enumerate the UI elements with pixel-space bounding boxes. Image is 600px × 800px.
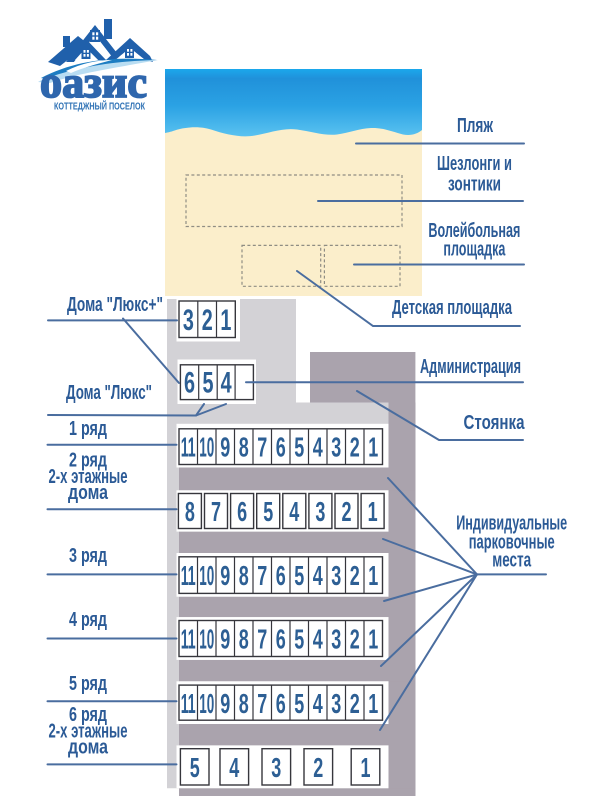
svg-text:Пляж: Пляж xyxy=(457,115,494,137)
svg-text:Дома "Люкс": Дома "Люкс" xyxy=(66,382,152,404)
svg-text:Шезлонги и: Шезлонги и xyxy=(437,153,512,175)
svg-text:8: 8 xyxy=(185,496,195,527)
svg-text:8: 8 xyxy=(239,560,249,591)
svg-text:11: 11 xyxy=(181,688,196,719)
svg-text:5: 5 xyxy=(294,688,304,719)
svg-text:8: 8 xyxy=(239,688,249,719)
svg-text:6: 6 xyxy=(276,688,286,719)
svg-text:9: 9 xyxy=(220,624,230,655)
svg-text:1: 1 xyxy=(368,560,378,591)
svg-text:1: 1 xyxy=(368,432,378,463)
svg-text:4: 4 xyxy=(221,367,232,400)
svg-text:7: 7 xyxy=(257,432,267,463)
svg-text:3: 3 xyxy=(331,432,341,463)
svg-text:7: 7 xyxy=(257,688,267,719)
svg-text:11: 11 xyxy=(181,624,196,655)
svg-text:Дома "Люкс+": Дома "Люкс+" xyxy=(67,294,163,316)
svg-text:оазис: оазис xyxy=(40,58,147,107)
svg-text:1: 1 xyxy=(368,624,378,655)
svg-text:5: 5 xyxy=(190,752,200,783)
svg-text:Стоянка: Стоянка xyxy=(464,412,526,434)
svg-text:4: 4 xyxy=(229,752,239,783)
svg-text:3: 3 xyxy=(183,304,194,337)
svg-text:места: места xyxy=(492,550,532,572)
svg-text:9: 9 xyxy=(220,560,230,591)
svg-text:5: 5 xyxy=(294,624,304,655)
svg-text:1: 1 xyxy=(361,752,371,783)
svg-text:3: 3 xyxy=(331,624,341,655)
svg-text:1 ряд: 1 ряд xyxy=(69,418,107,440)
svg-text:3 ряд: 3 ряд xyxy=(69,545,107,567)
svg-text:дома: дома xyxy=(68,737,109,759)
svg-text:9: 9 xyxy=(220,688,230,719)
svg-text:Администрация: Администрация xyxy=(420,356,521,378)
svg-text:5 ряд: 5 ряд xyxy=(69,673,107,695)
svg-text:1: 1 xyxy=(368,688,378,719)
svg-text:8: 8 xyxy=(239,432,249,463)
svg-text:8: 8 xyxy=(239,624,249,655)
svg-text:10: 10 xyxy=(199,432,214,463)
svg-text:10: 10 xyxy=(199,624,214,655)
svg-text:5: 5 xyxy=(294,560,304,591)
svg-text:5: 5 xyxy=(263,496,273,527)
svg-text:2: 2 xyxy=(350,688,360,719)
svg-text:КОТТЕДЖНЫЙ ПОСЕЛОК: КОТТЕДЖНЫЙ ПОСЕЛОК xyxy=(54,100,146,113)
svg-text:5: 5 xyxy=(203,367,214,400)
svg-text:9: 9 xyxy=(220,432,230,463)
svg-text:зонтики: зонтики xyxy=(448,174,501,196)
svg-text:4: 4 xyxy=(313,560,323,591)
svg-text:дома: дома xyxy=(68,482,109,504)
svg-text:4: 4 xyxy=(313,432,323,463)
svg-text:11: 11 xyxy=(181,432,196,463)
svg-text:4 ряд: 4 ряд xyxy=(69,609,107,631)
svg-text:2: 2 xyxy=(350,560,360,591)
svg-text:5: 5 xyxy=(294,432,304,463)
svg-text:2: 2 xyxy=(313,752,323,783)
svg-text:7: 7 xyxy=(257,624,267,655)
svg-text:1: 1 xyxy=(220,304,231,337)
svg-text:2: 2 xyxy=(350,432,360,463)
svg-text:4: 4 xyxy=(313,688,323,719)
svg-text:7: 7 xyxy=(211,496,221,527)
svg-text:4: 4 xyxy=(313,624,323,655)
svg-text:2: 2 xyxy=(350,624,360,655)
svg-text:3: 3 xyxy=(315,496,325,527)
svg-text:6: 6 xyxy=(276,560,286,591)
svg-text:6: 6 xyxy=(237,496,247,527)
svg-text:6: 6 xyxy=(184,367,195,400)
svg-text:площадка: площадка xyxy=(443,239,506,261)
svg-text:6: 6 xyxy=(276,432,286,463)
svg-text:2: 2 xyxy=(202,304,213,337)
svg-text:11: 11 xyxy=(181,560,196,591)
svg-text:Детская площадка: Детская площадка xyxy=(392,297,513,319)
svg-text:3: 3 xyxy=(331,560,341,591)
svg-text:3: 3 xyxy=(271,752,281,783)
svg-text:10: 10 xyxy=(199,560,214,591)
svg-text:1: 1 xyxy=(368,496,378,527)
svg-text:3: 3 xyxy=(331,688,341,719)
svg-text:2: 2 xyxy=(342,496,352,527)
svg-text:6: 6 xyxy=(276,624,286,655)
svg-text:10: 10 xyxy=(199,688,214,719)
svg-text:7: 7 xyxy=(257,560,267,591)
svg-text:4: 4 xyxy=(289,496,299,527)
